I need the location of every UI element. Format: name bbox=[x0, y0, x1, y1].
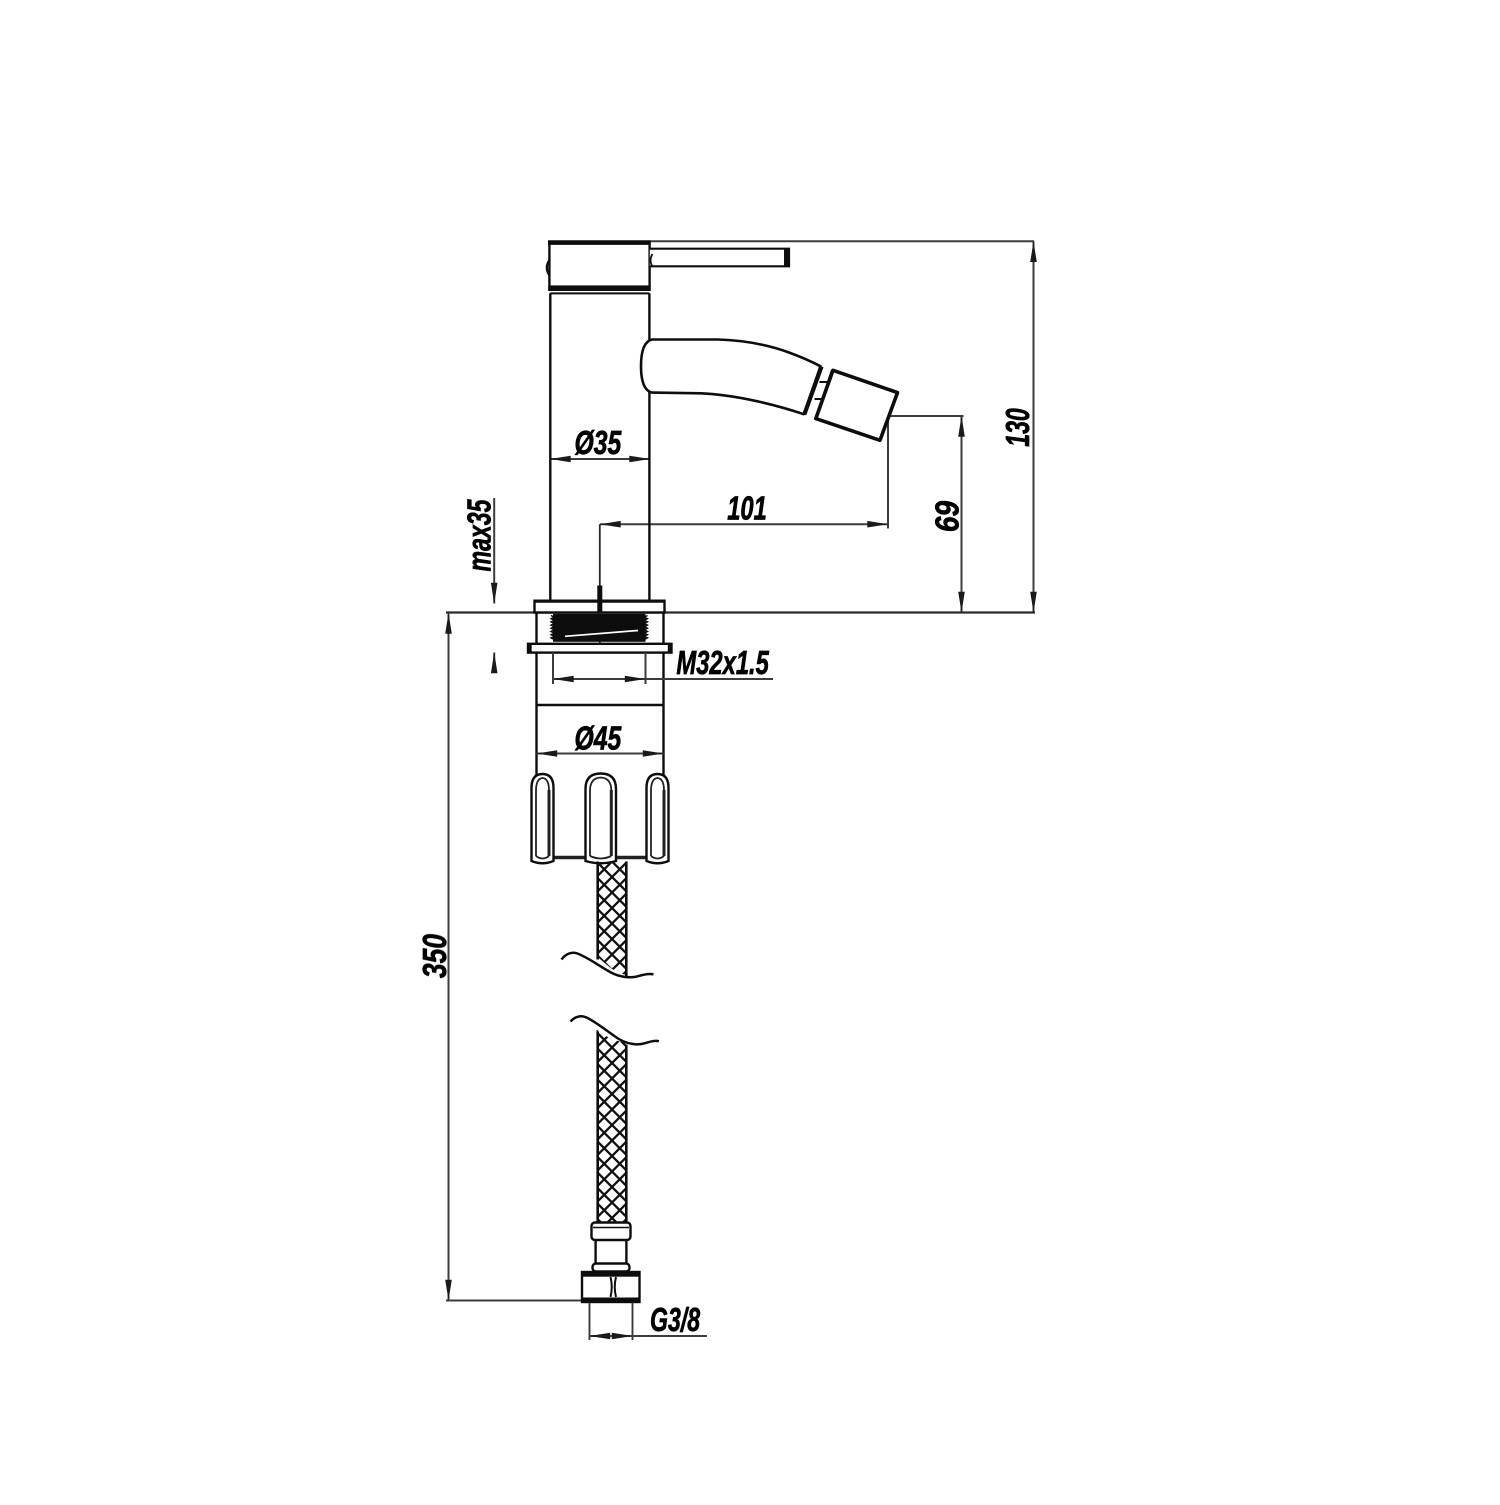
svg-text:101: 101 bbox=[727, 491, 767, 528]
svg-text:G3/8: G3/8 bbox=[650, 1302, 700, 1339]
svg-text:130: 130 bbox=[1000, 408, 1037, 447]
svg-text:Ø35: Ø35 bbox=[575, 426, 622, 462]
svg-text:69: 69 bbox=[929, 501, 966, 532]
svg-text:350: 350 bbox=[417, 934, 453, 978]
svg-text:Ø45: Ø45 bbox=[575, 721, 622, 757]
svg-text:M32x1.5: M32x1.5 bbox=[676, 645, 769, 682]
svg-text:max35: max35 bbox=[462, 499, 499, 572]
